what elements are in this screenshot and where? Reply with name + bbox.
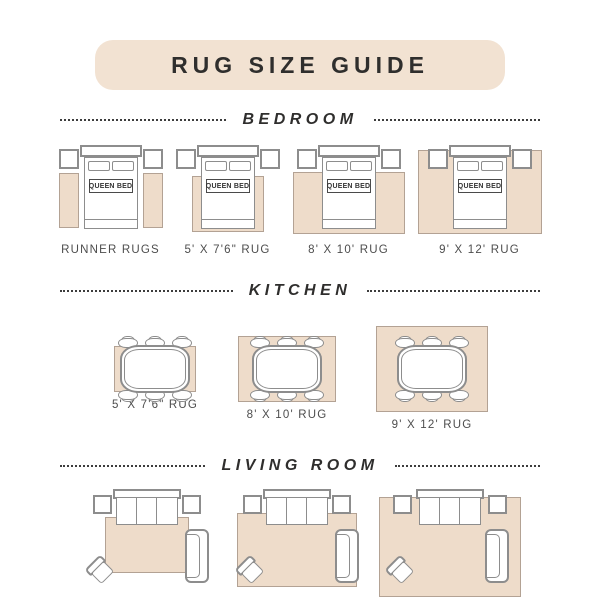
rug-size-guide-page: RUG SIZE GUIDE BEDROOM QUEEN BED <box>0 0 600 600</box>
dotted-divider-right <box>395 465 540 467</box>
sofa-cushions <box>419 497 481 525</box>
rug-size-label: 9' X 12' RUG <box>392 419 473 431</box>
section-title-kitchen: KITCHEN <box>249 282 352 300</box>
armchair <box>185 529 209 583</box>
bedroom-8x10-diagram: QUEEN BED <box>293 145 405 237</box>
pillow-left <box>457 161 479 171</box>
dotted-divider-left <box>60 465 205 467</box>
sofa-cushions <box>116 497 178 525</box>
kitchen-8x10-diagram <box>238 336 336 402</box>
rug-size-label: RUNNER RUGS <box>61 244 160 256</box>
section-heading-bedroom: BEDROOM <box>60 111 540 129</box>
end-table-right <box>332 495 351 514</box>
rug-size-label: 8' X 10' RUG <box>308 244 389 256</box>
headboard <box>197 145 259 157</box>
queen-bed: QUEEN BED <box>201 157 255 229</box>
bed-furniture-group: QUEEN BED <box>59 145 163 237</box>
living-room-diagram-row: 5' X 7'6" RUG 8' X 10' RUG <box>0 487 600 600</box>
sofa <box>419 489 481 525</box>
end-table-left <box>93 495 112 514</box>
diagram-living-8x10: 8' X 10' RUG <box>227 487 367 600</box>
sofa-cushion <box>306 497 328 525</box>
nightstand-right <box>143 149 163 169</box>
bed-label: QUEEN BED <box>458 179 502 193</box>
diagram-bedroom-8x10: QUEEN BED 8' X 10' RUG <box>293 145 405 256</box>
diagram-bedroom-5x76: QUEEN BED 5' X 7'6" RUG <box>176 145 280 256</box>
nightstand-right <box>512 149 532 169</box>
headboard <box>318 145 380 157</box>
sofa-cushion <box>439 497 461 525</box>
bed-foot-line <box>202 219 254 220</box>
pillow-right <box>350 161 372 171</box>
rug-size-label: 8' X 10' RUG <box>247 409 328 421</box>
living-5x76-diagram <box>77 487 217 599</box>
page-title: RUG SIZE GUIDE <box>171 52 429 79</box>
living-9x12-diagram <box>377 487 523 599</box>
area-rug <box>105 517 189 573</box>
end-table-right <box>182 495 201 514</box>
bed-label: QUEEN BED <box>89 179 133 193</box>
bedroom-9x12-diagram: QUEEN BED <box>418 145 542 237</box>
dotted-divider-left <box>60 290 233 292</box>
bed-furniture-group: QUEEN BED <box>176 145 280 237</box>
pillow-left <box>326 161 348 171</box>
pillow-right <box>112 161 134 171</box>
title-banner: RUG SIZE GUIDE <box>95 40 505 90</box>
nightstand-left <box>59 149 79 169</box>
section-heading-kitchen: KITCHEN <box>60 282 540 300</box>
bed-furniture-group: QUEEN BED <box>297 145 401 237</box>
sofa-cushion <box>266 497 288 525</box>
end-table-left <box>393 495 412 514</box>
kitchen-diagram-row: 5' X 7'6" RUG 8' X 10' RUG <box>0 326 600 431</box>
pillow-left <box>205 161 227 171</box>
bed-foot-line <box>454 219 506 220</box>
sofa <box>116 489 178 525</box>
dining-table <box>397 345 467 393</box>
diagram-kitchen-5x76: 5' X 7'6" RUG <box>112 346 198 411</box>
sofa-cushion <box>459 497 481 525</box>
section-title-living-room: LIVING ROOM <box>221 457 378 475</box>
living-8x10-diagram <box>227 487 367 599</box>
pillow-right <box>481 161 503 171</box>
diagram-living-5x76: 5' X 7'6" RUG <box>77 487 217 600</box>
diagram-kitchen-9x12: 9' X 12' RUG <box>376 326 488 431</box>
dotted-divider-right <box>374 119 540 121</box>
headboard <box>449 145 511 157</box>
sofa-cushion <box>286 497 308 525</box>
bed-furniture-group: QUEEN BED <box>428 145 532 237</box>
bed-foot-line <box>323 219 375 220</box>
pillow-right <box>229 161 251 171</box>
queen-bed: QUEEN BED <box>84 157 138 229</box>
armchair <box>485 529 509 583</box>
diagram-bedroom-9x12: QUEEN BED 9' X 12' RUG <box>418 145 542 256</box>
armchair <box>335 529 359 583</box>
bedroom-runner-diagram: QUEEN BED <box>59 145 163 237</box>
kitchen-9x12-diagram <box>376 326 488 412</box>
sofa-cushion <box>136 497 158 525</box>
section-heading-living-room: LIVING ROOM <box>60 457 540 475</box>
sofa-cushion <box>419 497 441 525</box>
nightstand-left <box>176 149 196 169</box>
dotted-divider-left <box>60 119 226 121</box>
end-table-left <box>243 495 262 514</box>
diagram-kitchen-8x10: 8' X 10' RUG <box>238 336 336 421</box>
bedroom-diagram-row: QUEEN BED RUNNER RUGS QUEEN BED <box>0 145 600 256</box>
end-table-right <box>488 495 507 514</box>
pillow-left <box>88 161 110 171</box>
rug-size-label: 9' X 12' RUG <box>439 244 520 256</box>
sofa <box>266 489 328 525</box>
sofa-cushion <box>116 497 138 525</box>
kitchen-5x76-diagram <box>114 346 196 392</box>
bed-foot-line <box>85 219 137 220</box>
headboard <box>80 145 142 157</box>
rug-size-label: 5' X 7'6" RUG <box>184 244 270 256</box>
queen-bed: QUEEN BED <box>453 157 507 229</box>
nightstand-left <box>297 149 317 169</box>
dotted-divider-right <box>367 290 540 292</box>
nightstand-right <box>381 149 401 169</box>
sofa-cushions <box>266 497 328 525</box>
dining-table <box>252 345 322 393</box>
nightstand-right <box>260 149 280 169</box>
diagram-living-9x12: 9' X 12' RUG <box>377 487 523 600</box>
bedroom-5x76-diagram: QUEEN BED <box>176 145 280 237</box>
sofa-cushion <box>156 497 178 525</box>
dining-table <box>120 345 190 393</box>
nightstand-left <box>428 149 448 169</box>
bed-label: QUEEN BED <box>206 179 250 193</box>
queen-bed: QUEEN BED <box>322 157 376 229</box>
bed-label: QUEEN BED <box>327 179 371 193</box>
section-title-bedroom: BEDROOM <box>242 111 357 129</box>
diagram-bedroom-runner-rugs: QUEEN BED RUNNER RUGS <box>59 145 163 256</box>
